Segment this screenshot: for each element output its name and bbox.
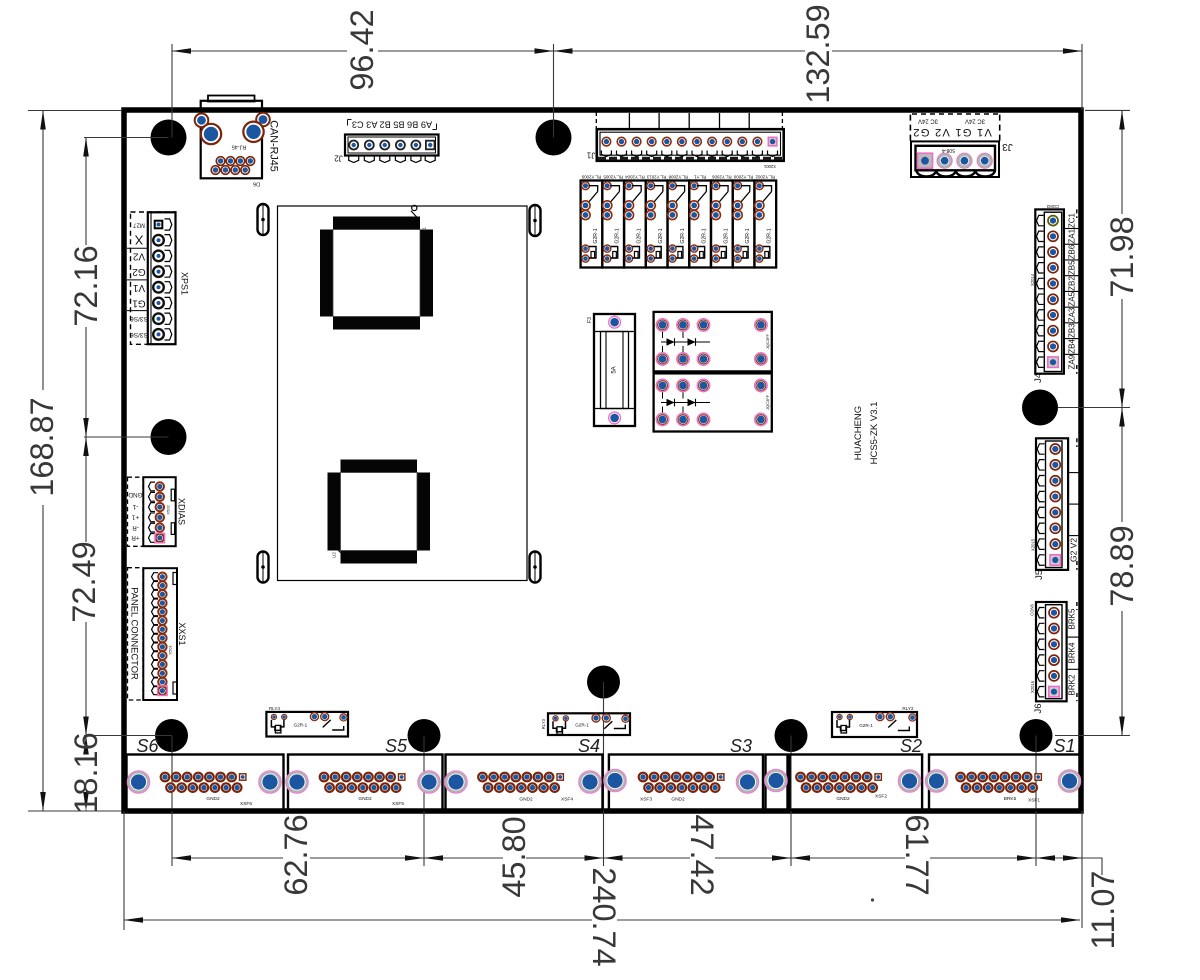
svg-text:S1: S1 (1053, 736, 1075, 756)
svg-text:HCS5-ZK V3.1: HCS5-ZK V3.1 (869, 402, 880, 465)
svg-text:XDIAS: XDIAS (177, 498, 187, 525)
svg-text:J5: J5 (1034, 570, 1045, 580)
svg-text:J1: J1 (586, 151, 595, 160)
svg-text:G2R-1: G2R-1 (575, 723, 589, 728)
svg-text:V1 G1 V2 G2: V1 G1 V2 G2 (912, 126, 992, 138)
svg-text:S4: S4 (578, 736, 600, 756)
svg-text:X2014: X2014 (1030, 273, 1035, 286)
svg-text:CAN-RJ45: CAN-RJ45 (268, 120, 280, 172)
svg-text:G2R-1: G2R-1 (702, 228, 708, 243)
svg-text:ZB2: ZB2 (1067, 276, 1076, 291)
svg-text:G2 V2: G2 V2 (1069, 538, 1079, 562)
svg-text:U2: U2 (332, 552, 337, 558)
svg-text:G2R-1: G2R-1 (593, 228, 599, 243)
svg-text:BRK4: BRK4 (1067, 642, 1076, 663)
svg-text:XSF6: XSF6 (240, 801, 252, 807)
svg-text:71.98: 71.98 (1104, 216, 1140, 297)
svg-text:U1: U1 (422, 227, 427, 233)
svg-text:S6: S6 (136, 736, 159, 756)
svg-text:JQC3FF: JQC3FF (765, 394, 770, 410)
svg-text:S3/S6: S3/S6 (130, 331, 148, 338)
svg-text:G2R-1: G2R-1 (767, 228, 773, 243)
svg-text:BRK2: BRK2 (1067, 674, 1076, 695)
svg-text:J4: J4 (1033, 373, 1044, 383)
svg-text:J3: J3 (1002, 141, 1013, 152)
svg-text:11.07: 11.07 (1085, 871, 1121, 950)
svg-text:GND2: GND2 (836, 796, 850, 802)
svg-text:XSF4: XSF4 (561, 797, 573, 803)
svg-text:ZB3: ZB3 (1067, 323, 1076, 338)
svg-text:-R: -R (132, 524, 139, 531)
svg-text:RL.Y2004: RL.Y2004 (625, 175, 645, 180)
svg-text:168.87: 168.87 (24, 397, 60, 496)
svg-text:V1: V1 (132, 282, 145, 293)
svg-text:BRK5: BRK5 (1004, 796, 1017, 802)
svg-text:X2016: X2016 (1030, 680, 1035, 693)
svg-text:G2R-1: G2R-1 (723, 228, 729, 243)
svg-text:RLY2: RLY2 (902, 706, 914, 711)
svg-text:3C 24V: 3C 24V (965, 118, 985, 124)
svg-text:XPS1: XPS1 (180, 272, 190, 295)
svg-text:G2: G2 (132, 266, 146, 277)
svg-text:RL.Y2008: RL.Y2008 (668, 175, 688, 180)
svg-text:ZB6: ZB6 (1067, 244, 1076, 259)
svg-text:J6: J6 (1033, 703, 1044, 713)
svg-text:HUACHENG: HUACHENG (853, 406, 864, 460)
svg-text:JQC3FF: JQC3FF (765, 334, 770, 350)
svg-text:ZB4: ZB4 (1067, 339, 1076, 354)
svg-text:G2R-1: G2R-1 (745, 228, 751, 243)
svg-text:GND2: GND2 (206, 796, 220, 802)
svg-text:G2R-1: G2R-1 (680, 228, 686, 243)
svg-text:X2001: X2001 (763, 164, 776, 169)
svg-text:G2R-1: G2R-1 (615, 228, 621, 243)
svg-text:XSF3: XSF3 (640, 797, 652, 803)
svg-text:RL.Y2013: RL.Y2013 (646, 175, 666, 180)
svg-text:RL.Y2000: RL.Y2000 (733, 175, 753, 180)
svg-text:XSF2: XSF2 (875, 794, 887, 800)
svg-text:78.89: 78.89 (1104, 525, 1140, 606)
svg-text:G1: G1 (132, 298, 146, 309)
svg-text:D6: D6 (253, 181, 260, 187)
svg-text:S5: S5 (385, 736, 408, 756)
svg-text:RL.Y2006: RL.Y2006 (712, 175, 732, 180)
svg-text:RLY3: RLY3 (541, 718, 546, 729)
svg-text:ZA9: ZA9 (1067, 354, 1076, 369)
svg-text:61.77: 61.77 (899, 814, 935, 895)
svg-text:RJ-45: RJ-45 (232, 144, 247, 150)
svg-text:GND2: GND2 (358, 796, 372, 802)
svg-text:X: X (134, 233, 143, 248)
svg-text:RL.Y1: RL.Y1 (693, 175, 706, 180)
svg-text:47.42: 47.42 (684, 814, 720, 895)
svg-text:96.42: 96.42 (344, 9, 380, 90)
svg-text:ZA3: ZA3 (1067, 307, 1076, 322)
svg-text:ZA1: ZA1 (1067, 228, 1076, 243)
svg-text:X2015: X2015 (1030, 538, 1035, 551)
svg-text:RL.Y2002: RL.Y2002 (755, 175, 775, 180)
svg-text:GND: GND (128, 491, 142, 498)
svg-text:RLY4: RLY4 (269, 706, 281, 711)
svg-text:72.49: 72.49 (66, 541, 102, 622)
svg-text:G2R-1: G2R-1 (658, 228, 664, 243)
svg-text:G2R-1: G2R-1 (294, 723, 308, 728)
svg-text:BRK5: BRK5 (1067, 608, 1076, 629)
svg-text:62.76: 62.76 (278, 814, 314, 895)
svg-text:S3/S6: S3/S6 (130, 315, 148, 322)
svg-text:V2: V2 (132, 250, 145, 261)
svg-text:ZA5: ZA5 (1067, 291, 1076, 306)
svg-text:132.59: 132.59 (800, 4, 836, 103)
svg-text:ZC1: ZC1 (1067, 212, 1076, 228)
svg-text:M27: M27 (133, 222, 145, 228)
svg-text:X501: X501 (168, 645, 173, 655)
svg-text:A9 B6 B5 B2 A3 C3: A9 B6 B5 B2 A3 C3 (352, 120, 432, 130)
svg-text:PANEL CONNECTOR: PANEL CONNECTOR (130, 587, 141, 680)
svg-text:508-4: 508-4 (942, 147, 955, 153)
svg-text:S3: S3 (730, 736, 752, 756)
svg-text:F3: F3 (587, 317, 593, 323)
svg-text:S2: S2 (900, 736, 922, 756)
svg-text:72.16: 72.16 (68, 245, 104, 326)
svg-text:-1: -1 (132, 503, 138, 510)
svg-text:XSF5: XSF5 (392, 801, 404, 807)
svg-text:5A: 5A (612, 366, 618, 373)
svg-text:G2R-1: G2R-1 (636, 228, 642, 243)
svg-text:18.16: 18.16 (68, 732, 104, 813)
svg-text:+R: +R (131, 534, 140, 541)
svg-text:J2: J2 (334, 154, 343, 163)
svg-text:RL.Y2009: RL.Y2009 (581, 175, 601, 180)
svg-text:3C 24V: 3C 24V (918, 118, 938, 124)
svg-text:GND2: GND2 (671, 797, 685, 803)
svg-text:XSF1: XSF1 (1028, 798, 1040, 804)
svg-text:+1: +1 (131, 514, 139, 521)
svg-text:COM3: COM3 (1046, 204, 1059, 209)
svg-text:240.74: 240.74 (586, 867, 622, 966)
svg-text:45.80: 45.80 (496, 816, 532, 897)
svg-text:G2R-1: G2R-1 (859, 723, 873, 728)
svg-text:X502: X502 (166, 505, 171, 515)
svg-text:ZB5: ZB5 (1067, 260, 1076, 275)
svg-text:RL.Y2005: RL.Y2005 (603, 175, 623, 180)
svg-text:XXS1: XXS1 (177, 622, 187, 645)
svg-text:GND2: GND2 (519, 797, 533, 803)
svg-text:CON6: CON6 (1029, 604, 1034, 616)
